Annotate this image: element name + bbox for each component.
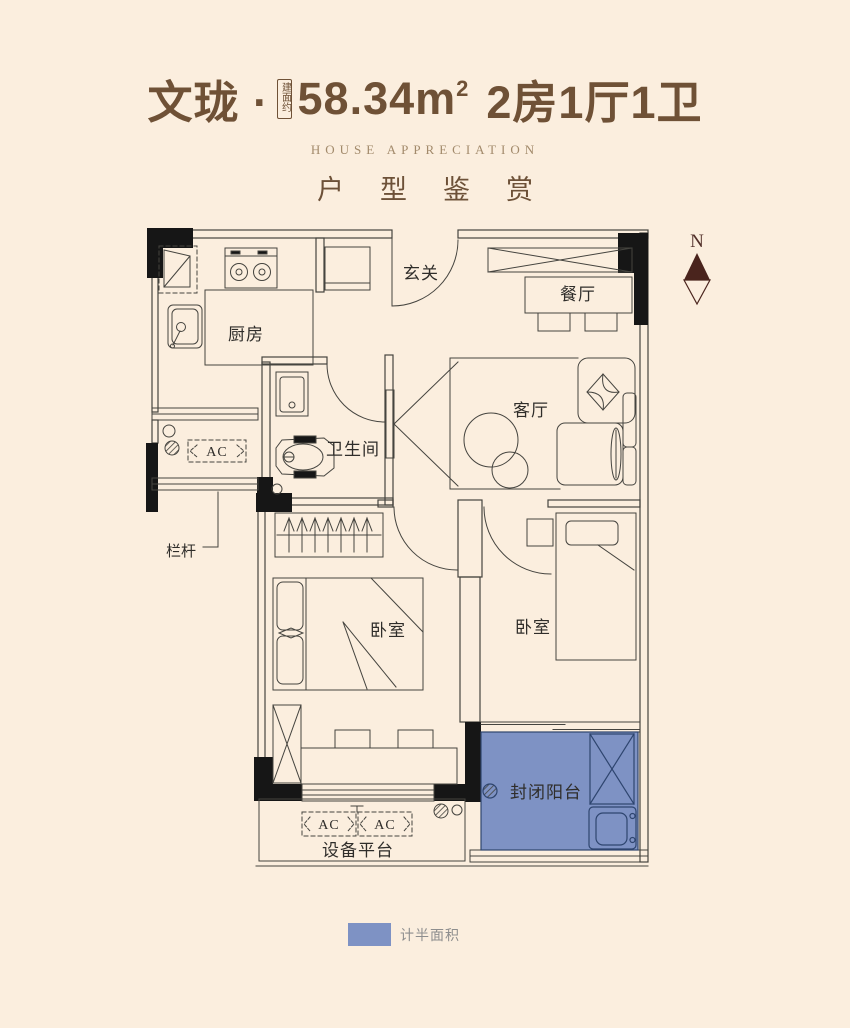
desk-and-chairs [273,705,457,784]
bathroom-label: 卫生间 [326,440,380,459]
railing-leader-line [203,492,218,547]
sofa [557,358,636,485]
bedroom-right-label: 卧室 [515,618,551,637]
floorplan-page: 文珑 ·建面约58.34m22房1厅1卫 HOUSE APPRECIATION … [0,0,850,1028]
tv [386,362,458,486]
wall-pillars [146,228,648,802]
legend: 计半面积 [348,923,460,946]
ac-label-left: AC [206,445,227,460]
north-arrow [684,253,710,304]
living-label: 客厅 [513,401,549,420]
drain-hatched [165,441,179,455]
bedroom-right [527,513,636,660]
nightstand [527,519,553,546]
stove [225,248,277,288]
bathroom [272,372,334,494]
railing-label: 栏杆 [166,543,196,560]
floor-drain [272,484,282,494]
wardrobe [275,513,383,557]
washbasin [276,372,308,416]
single-bed [556,513,636,660]
floor-plan: 厨房 玄关 餐厅 客厅 卫生间 卧室 卧室 栏杆 封闭阳台 设备平台 AC AC… [0,0,850,1028]
ac-platform-left [163,425,246,547]
ac-label-platform-1: AC [318,818,339,833]
balcony-label: 封闭阳台 [510,783,582,802]
bathroom-door-swing [327,364,385,422]
living-room [386,358,636,489]
ac-label-platform-2: AC [374,818,395,833]
half-area-label: 计半面积 [400,925,460,945]
coffee-table-small [492,452,528,488]
balcony-drain [483,784,497,798]
coffee-table [464,413,518,467]
dining-chair [538,313,570,331]
dining-label: 餐厅 [560,285,596,304]
bedroom-left [273,513,457,784]
bedroom-right-door-swing [484,507,551,574]
drain-hatched [434,804,448,818]
kitchen [159,246,370,365]
kitchen-sink [168,305,202,348]
north-label: N [690,231,704,252]
bedroom-left-label: 卧室 [370,621,406,640]
entry-cabinet [325,247,370,290]
equipment-platform-label: 设备平台 [322,841,394,860]
dining-chair [585,313,617,331]
kitchen-label: 厨房 [228,325,264,344]
entry-label: 玄关 [403,264,439,283]
half-area-swatch [348,923,391,946]
dining-cabinet [488,248,632,272]
bedroom-left-door-swing [394,507,457,570]
